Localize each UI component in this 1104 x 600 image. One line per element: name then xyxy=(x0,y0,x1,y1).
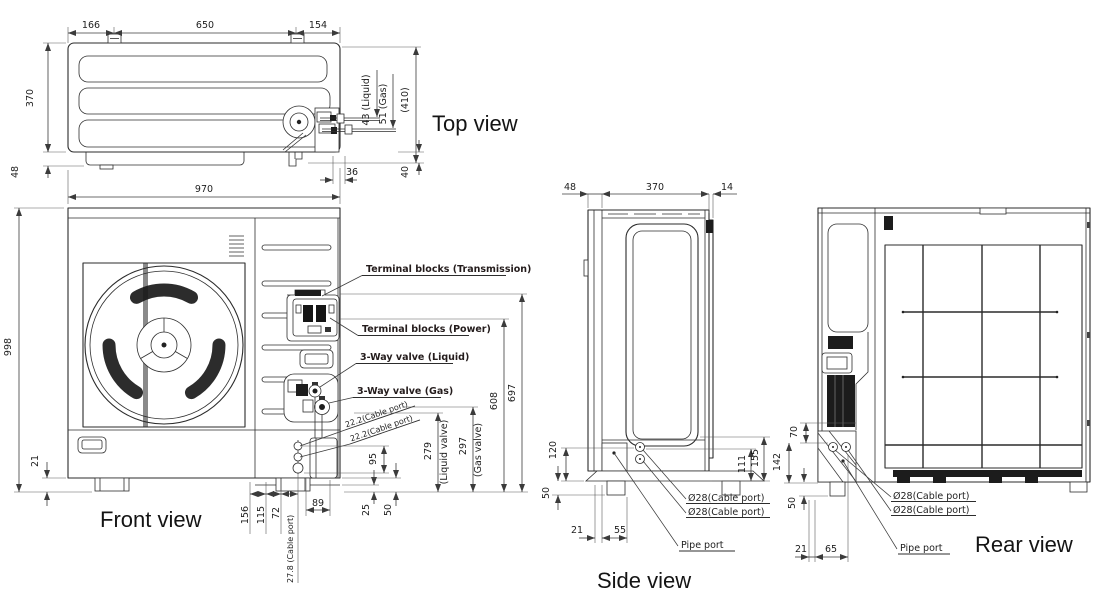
dim-top-mount-left: 166 xyxy=(82,20,100,31)
mounting-tab xyxy=(108,34,304,43)
dim-top-gas: 51 (Gas) xyxy=(378,84,389,125)
outdoor-unit-drawing: 166 650 154 370 48 43 (Liquid) 51 (Gas) … xyxy=(0,0,1104,600)
width-dimension: 970 xyxy=(68,168,340,204)
base-bracket xyxy=(310,438,337,478)
base-bar xyxy=(893,470,1082,477)
dim-top-36: 36 xyxy=(346,167,358,178)
coil-bulge xyxy=(709,220,713,458)
dim-top-liquid: 43 (Liquid) xyxy=(361,74,372,125)
label-valve-liquid: 3-Way valve (Liquid) xyxy=(360,352,469,363)
dim-top-rear: 48 xyxy=(10,166,21,178)
dim-top-overall: (410) xyxy=(400,87,411,113)
dim-front-95: 95 xyxy=(368,453,379,465)
dim-front-72: 72 xyxy=(271,507,282,519)
callout-valve-gas: 3-Way valve (Gas) xyxy=(329,386,453,403)
dim-side-14: 14 xyxy=(721,182,733,193)
dim-rear-21: 21 xyxy=(795,544,807,555)
dim-rear-65: 65 xyxy=(825,544,837,555)
rear-view: 70 142 50 21 65 Ø28(Cable port) Ø28(Cabl… xyxy=(772,208,1090,562)
foot-side xyxy=(607,481,625,495)
dim-side-120: 120 xyxy=(548,441,559,459)
front-view: Terminal blocks (Transmission) Terminal … xyxy=(3,208,531,583)
dim-side-155: 155 xyxy=(750,449,761,467)
valve-assembly xyxy=(284,374,338,438)
label-side-cable2: Ø28(Cable port) xyxy=(688,507,764,518)
dim-rear-142: 142 xyxy=(772,453,783,471)
dim-front-liquid-note: (Liquid valve) xyxy=(439,420,450,485)
dim-front-50: 50 xyxy=(383,504,394,516)
dim-front-115: 115 xyxy=(256,506,267,524)
dim-front-width: 970 xyxy=(195,184,213,195)
dim-side-50: 50 xyxy=(541,487,552,499)
coil-grid xyxy=(885,245,1082,468)
dim-side-48: 48 xyxy=(564,182,576,193)
foot-rear xyxy=(830,482,845,496)
technical-drawing-page: 166 650 154 370 48 43 (Liquid) 51 (Gas) … xyxy=(0,0,1104,600)
dim-front-25: 25 xyxy=(361,504,372,516)
fan-grille xyxy=(83,263,245,427)
cable-ports-side xyxy=(636,443,645,464)
dim-front-89: 89 xyxy=(312,498,324,509)
dim-front-trans-h: 697 xyxy=(507,384,518,402)
label-side-cable1: Ø28(Cable port) xyxy=(688,493,764,504)
side-view-title: Side view xyxy=(597,568,691,593)
foot-rear xyxy=(1070,482,1087,492)
side-view: 48 370 14 120 50 21 55 111 155 Ø28(Cable… xyxy=(541,182,770,593)
feet-front xyxy=(95,478,310,491)
dim-side-370: 370 xyxy=(646,182,664,193)
label-rear-cable2: Ø28(Cable port) xyxy=(893,505,969,516)
vent-slots xyxy=(229,236,244,256)
label-terminal-transmission: Terminal blocks (Transmission) xyxy=(366,264,531,275)
dim-front-base: 21 xyxy=(30,455,41,467)
dim-side-111: 111 xyxy=(737,455,748,473)
dim-top-mount-right: 154 xyxy=(309,20,327,31)
callout-valve-liquid: 3-Way valve (Liquid) xyxy=(320,352,469,387)
top-view-title: Top view xyxy=(432,111,518,136)
dim-front-gas-h: 297 xyxy=(458,437,469,455)
dim-side-55: 55 xyxy=(614,525,626,536)
callout-terminal-transmission: Terminal blocks (Transmission) xyxy=(322,264,531,296)
label-side-pipe-port: Pipe port xyxy=(681,540,724,551)
dim-side-21: 21 xyxy=(571,525,583,536)
coil-frame xyxy=(626,224,698,446)
rear-bracket xyxy=(289,152,302,166)
label-terminal-power: Terminal blocks (Power) xyxy=(362,324,491,335)
top-view: 166 650 154 370 48 43 (Liquid) 51 (Gas) … xyxy=(10,20,518,184)
dim-front-liquid-h: 279 xyxy=(423,442,434,460)
label-cable278: 27.8 (Cable port) xyxy=(286,515,295,583)
dim-rear-50: 50 xyxy=(787,497,798,509)
dim-front-156: 156 xyxy=(240,506,251,524)
dim-top-mount-mid: 650 xyxy=(196,20,214,31)
drain-pan xyxy=(86,152,244,165)
dim-front-power-h: 608 xyxy=(489,392,500,410)
rear-view-title: Rear view xyxy=(975,532,1073,557)
dim-top-40: 40 xyxy=(400,166,411,178)
label-valve-gas: 3-Way valve (Gas) xyxy=(357,386,453,397)
label-rear-pipe-port: Pipe port xyxy=(900,543,943,554)
dim-front-height: 998 xyxy=(3,338,14,356)
fan-scroll xyxy=(283,106,315,138)
callout-terminal-power: Terminal blocks (Power) xyxy=(330,318,491,336)
dim-front-gas-note: (Gas valve) xyxy=(473,423,484,477)
dim-top-depth: 370 xyxy=(25,89,36,107)
label-rear-cable1: Ø28(Cable port) xyxy=(893,491,969,502)
terminal-box xyxy=(287,290,339,341)
front-view-title: Front view xyxy=(100,507,202,532)
dim-rear-70: 70 xyxy=(789,426,800,438)
